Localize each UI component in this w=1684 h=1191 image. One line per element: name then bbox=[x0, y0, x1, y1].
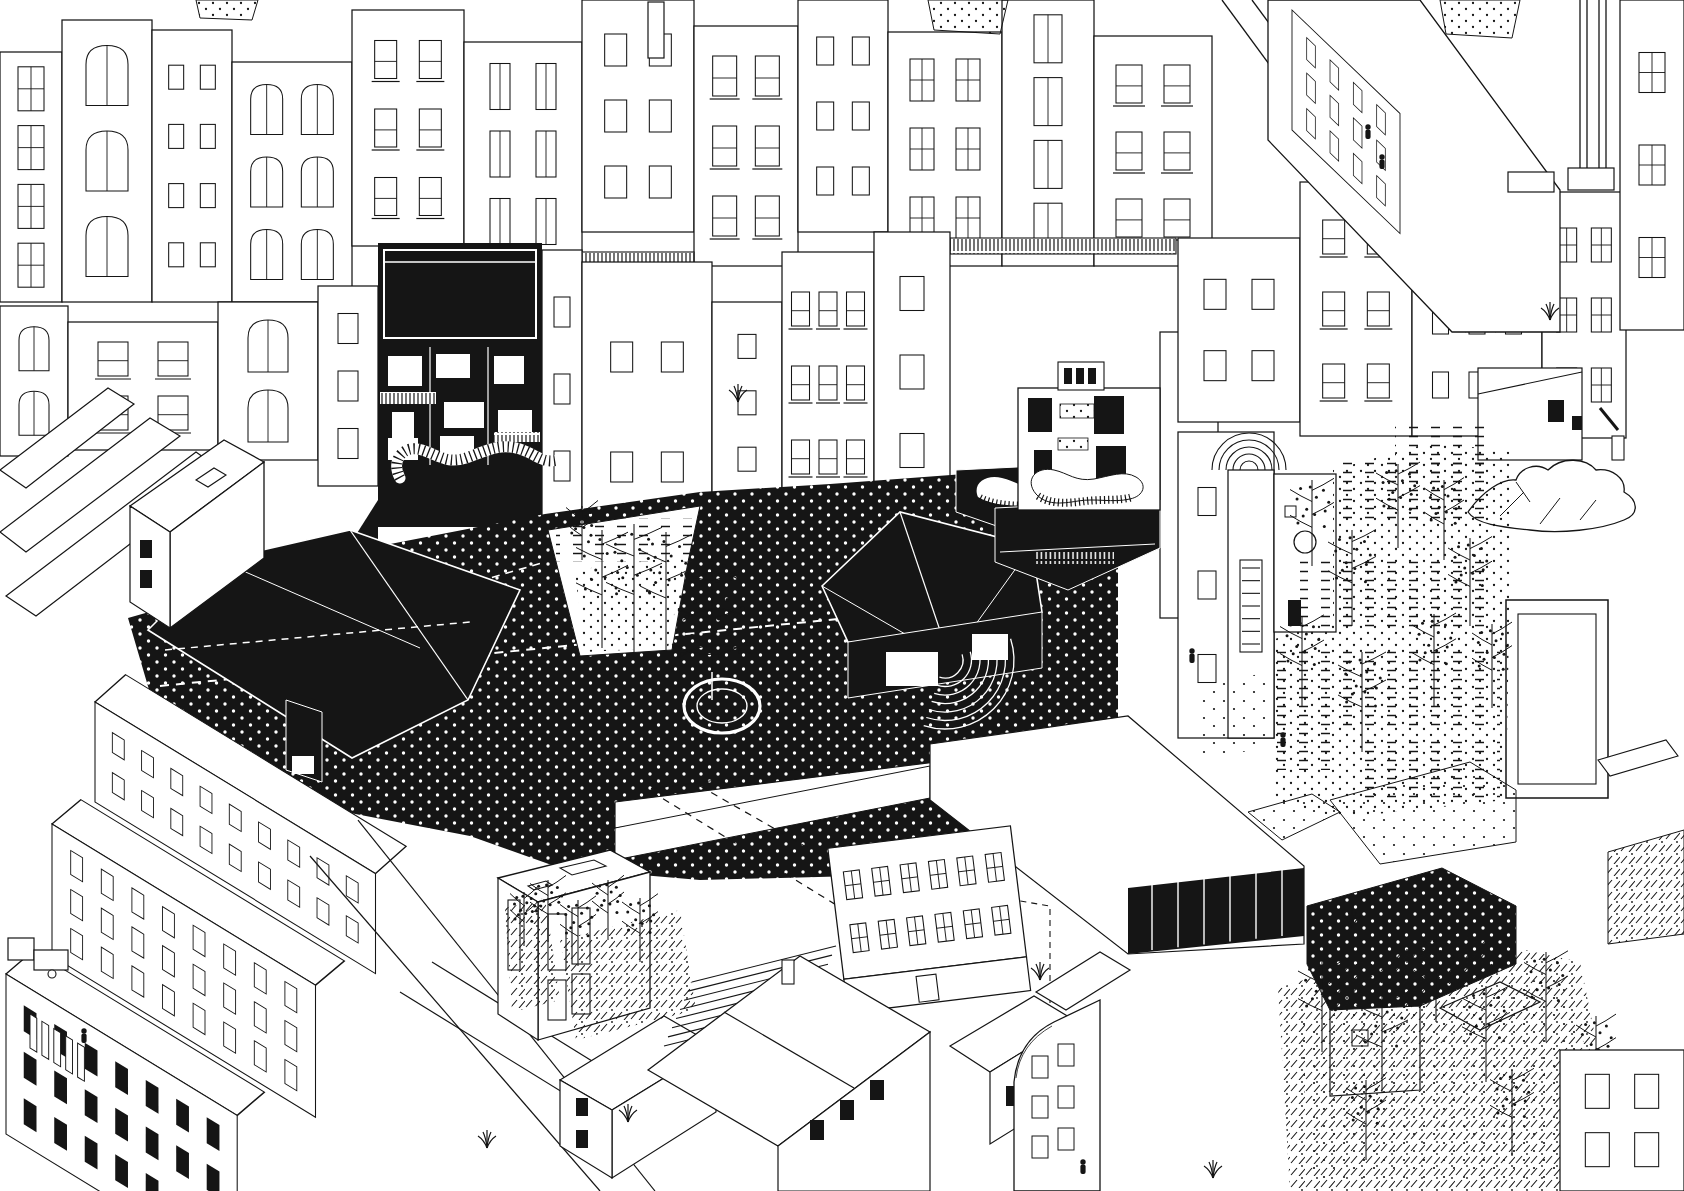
tree-foliage-dot bbox=[1556, 961, 1559, 964]
tree-foliage-dot bbox=[589, 511, 592, 514]
sash-window bbox=[1116, 199, 1142, 237]
sash-window bbox=[713, 126, 737, 166]
tree-foliage-dot bbox=[1515, 1086, 1518, 1089]
tree-foliage-dot bbox=[1435, 649, 1438, 652]
tree-foliage-dot bbox=[1480, 631, 1483, 634]
tree-foliage-dot bbox=[1308, 968, 1311, 971]
tree-foliage-dot bbox=[1457, 545, 1460, 548]
tree-foliage-dot bbox=[1302, 515, 1305, 518]
tree-foliage-dot bbox=[587, 922, 590, 925]
tree-foliage-dot bbox=[1498, 1036, 1501, 1039]
tree-foliage-dot bbox=[718, 654, 722, 658]
tree-foliage-dot bbox=[1367, 1001, 1370, 1004]
tree-foliage-dot bbox=[616, 571, 619, 574]
tree-foliage-dot bbox=[722, 564, 726, 568]
black-billboard-facade bbox=[378, 243, 542, 347]
tree-foliage-dot bbox=[1463, 566, 1466, 569]
tree-foliage-dot bbox=[618, 535, 621, 538]
tree-foliage-dot bbox=[1400, 1017, 1403, 1020]
tree-foliage-dot bbox=[596, 909, 599, 912]
plain-window bbox=[817, 37, 834, 65]
plain-window bbox=[817, 102, 834, 130]
tree-foliage-dot bbox=[572, 921, 575, 924]
tree-foliage-dot bbox=[1446, 646, 1449, 649]
tree-foliage-dot bbox=[1339, 982, 1342, 985]
dark-window bbox=[840, 1100, 854, 1120]
person-figure bbox=[1080, 1159, 1085, 1174]
tree-foliage-dot bbox=[1449, 636, 1452, 639]
tree-foliage-dot bbox=[710, 561, 714, 565]
dark-vent bbox=[1548, 400, 1564, 422]
facade-wall bbox=[1094, 36, 1212, 266]
tree-foliage-dot bbox=[1344, 673, 1347, 676]
facade-wall bbox=[798, 0, 888, 232]
small-window bbox=[1058, 1086, 1074, 1108]
cart-box bbox=[34, 950, 68, 970]
sash-window bbox=[1164, 65, 1190, 103]
plain-window bbox=[338, 429, 358, 459]
tree-foliage-dot bbox=[1311, 997, 1314, 1000]
plinth bbox=[1508, 172, 1554, 192]
attic-slit bbox=[1064, 368, 1072, 384]
small-window bbox=[1058, 1128, 1074, 1150]
tree-foliage-dot bbox=[1309, 485, 1312, 488]
tree-foliage-dot bbox=[1363, 1085, 1366, 1088]
tree-foliage-dot bbox=[1365, 671, 1368, 674]
plain-window bbox=[852, 37, 869, 65]
tree-foliage-dot bbox=[728, 632, 732, 636]
plain-window bbox=[554, 297, 570, 327]
tree-foliage-dot bbox=[651, 543, 654, 546]
pavilion-opening bbox=[886, 652, 938, 686]
tree-foliage-dot bbox=[1355, 548, 1358, 551]
vent-grid bbox=[1060, 404, 1094, 418]
plain-window bbox=[611, 342, 633, 372]
tree-foliage-dot bbox=[1418, 633, 1421, 636]
tree-foliage-dot bbox=[1299, 487, 1302, 490]
tree-foliage-dot bbox=[1384, 1031, 1387, 1034]
tree-foliage-dot bbox=[1305, 508, 1308, 511]
crosswalk-stripe bbox=[54, 1029, 61, 1067]
tree-foliage-dot bbox=[593, 519, 596, 522]
tree-foliage-dot bbox=[1447, 980, 1450, 983]
plain-window bbox=[200, 243, 215, 267]
crosswalk-stripe bbox=[66, 1036, 73, 1074]
plain-window bbox=[1198, 488, 1216, 516]
tree-foliage-dot bbox=[1496, 1087, 1499, 1090]
tree-foliage-dot bbox=[1296, 497, 1299, 500]
tree-foliage-dot bbox=[1420, 977, 1423, 980]
tree-foliage-dot bbox=[619, 894, 622, 897]
tree-foliage-dot bbox=[533, 905, 536, 908]
tree-foliage-dot bbox=[1527, 1091, 1530, 1094]
facade-wall bbox=[464, 42, 582, 266]
tree-foliage-dot bbox=[1530, 970, 1533, 973]
facade bbox=[232, 62, 352, 302]
person-head bbox=[1189, 648, 1194, 653]
white-window bbox=[392, 412, 414, 442]
dark-slit-window bbox=[140, 570, 152, 588]
facade bbox=[798, 0, 888, 232]
tree-foliage-dot bbox=[1439, 950, 1442, 953]
tree-foliage-dot bbox=[662, 540, 665, 543]
tree-foliage-dot bbox=[1460, 573, 1463, 576]
plain-window bbox=[1635, 1133, 1659, 1167]
dark-window bbox=[870, 1080, 884, 1100]
plain-window bbox=[200, 184, 215, 208]
tree-foliage-dot bbox=[600, 904, 603, 907]
plain-window bbox=[661, 452, 683, 482]
tree-foliage-dot bbox=[539, 905, 542, 908]
tree-foliage-dot bbox=[603, 899, 606, 902]
tree-foliage-dot bbox=[1345, 561, 1348, 564]
tree-foliage-dot bbox=[1313, 513, 1316, 516]
person-head bbox=[1280, 732, 1285, 737]
tree-foliage-dot bbox=[685, 615, 689, 619]
tree-foliage-dot bbox=[1468, 1006, 1471, 1009]
tree-foliage-dot bbox=[1334, 550, 1337, 553]
tree-foliage-dot bbox=[1471, 572, 1474, 575]
tree-foliage-dot bbox=[634, 918, 637, 921]
corner-facade bbox=[1620, 0, 1684, 330]
tree-foliage-dot bbox=[589, 534, 592, 537]
tree-foliage-dot bbox=[1375, 1088, 1378, 1091]
tree-foliage-dot bbox=[1357, 1112, 1360, 1115]
sash-window bbox=[819, 366, 837, 400]
plain-window bbox=[169, 124, 184, 148]
sash-window bbox=[819, 440, 837, 474]
tree-foliage-dot bbox=[1345, 701, 1348, 704]
tree-foliage-dot bbox=[1503, 653, 1506, 656]
tree-foliage-dot bbox=[1424, 651, 1427, 654]
dark-vent bbox=[1572, 416, 1582, 430]
tree-foliage-dot bbox=[1325, 977, 1328, 980]
attic-slit bbox=[1088, 368, 1096, 384]
sash-window bbox=[792, 366, 810, 400]
tree-foliage-dot bbox=[1533, 960, 1536, 963]
sash-window bbox=[755, 56, 779, 96]
person-head bbox=[1379, 154, 1384, 159]
school-block bbox=[828, 826, 1031, 1013]
tree-foliage-dot bbox=[1445, 511, 1448, 514]
tree-foliage-dot bbox=[1458, 499, 1461, 502]
tree-foliage-dot bbox=[1367, 1111, 1370, 1114]
tree-foliage-dot bbox=[582, 526, 585, 529]
plain-window bbox=[1204, 279, 1226, 309]
tree-foliage-dot bbox=[1373, 663, 1376, 666]
cart-box bbox=[8, 938, 34, 960]
tree-foliage-dot bbox=[615, 592, 618, 595]
plain-window bbox=[661, 342, 683, 372]
tree-foliage-dot bbox=[525, 901, 528, 904]
tree-foliage-dot bbox=[1351, 693, 1354, 696]
tree-foliage-dot bbox=[1610, 1036, 1613, 1039]
tree-foliage-dot bbox=[569, 926, 572, 929]
tree-foliage-dot bbox=[679, 595, 682, 598]
tree-foliage-dot bbox=[575, 904, 578, 907]
sash-window bbox=[1164, 132, 1190, 170]
sash-window bbox=[1323, 292, 1345, 326]
meadow-dashes bbox=[1330, 650, 1500, 726]
tree-foliage-dot bbox=[710, 595, 714, 599]
tree-foliage-dot bbox=[1335, 992, 1338, 995]
plain-window bbox=[1635, 1074, 1659, 1108]
tree-foliage-dot bbox=[1454, 522, 1457, 525]
facade bbox=[542, 250, 582, 528]
tree-foliage-dot bbox=[1483, 992, 1486, 995]
tree-foliage-dot bbox=[598, 885, 601, 888]
tree-foliage-dot bbox=[1333, 970, 1336, 973]
tree-foliage-dot bbox=[587, 540, 590, 543]
tree-foliage-dot bbox=[1473, 554, 1476, 557]
tree-foliage-dot bbox=[1547, 987, 1550, 990]
tree-foliage-dot bbox=[641, 922, 644, 925]
tree-foliage-dot bbox=[696, 565, 700, 569]
facade bbox=[888, 32, 1002, 266]
tree-foliage-dot bbox=[1364, 580, 1367, 583]
sash-window bbox=[792, 440, 810, 474]
tree-foliage-dot bbox=[1292, 652, 1295, 655]
sash-window bbox=[1367, 364, 1389, 398]
tree-foliage-dot bbox=[1304, 979, 1307, 982]
tree-foliage-dot bbox=[649, 931, 652, 934]
tree-foliage-dot bbox=[629, 903, 632, 906]
plain-window bbox=[738, 447, 756, 471]
tree-foliage-dot bbox=[741, 606, 745, 610]
facade-wall bbox=[828, 826, 1027, 979]
school-door bbox=[916, 974, 939, 1002]
tree-foliage-dot bbox=[1584, 1023, 1587, 1026]
tree-foliage-dot bbox=[1486, 651, 1489, 654]
facade-wall bbox=[1178, 238, 1300, 422]
dark-window bbox=[1028, 398, 1052, 432]
facade bbox=[782, 252, 874, 514]
tree-foliage-dot bbox=[1429, 962, 1432, 965]
tree-foliage-dot bbox=[587, 934, 590, 937]
sash-window bbox=[1116, 65, 1142, 103]
tree-foliage-dot bbox=[579, 925, 582, 928]
parapet-rail-ticks bbox=[950, 238, 1176, 254]
tree-foliage-dot bbox=[1590, 1043, 1593, 1046]
tree-foliage-dot bbox=[1312, 625, 1315, 628]
tree-foliage-dot bbox=[621, 576, 624, 579]
tree-foliage-dot bbox=[1394, 1003, 1397, 1006]
tree-foliage-dot bbox=[557, 912, 560, 915]
tree-foliage-dot bbox=[594, 569, 597, 572]
tree-foliage-dot bbox=[1305, 1005, 1308, 1008]
person-head bbox=[1080, 1159, 1085, 1164]
tree-foliage-dot bbox=[626, 566, 629, 569]
tree-foliage-dot bbox=[515, 896, 518, 899]
chimney bbox=[648, 2, 664, 58]
canopy-house bbox=[1478, 368, 1582, 460]
sash-window bbox=[1367, 292, 1389, 326]
tree-foliage-dot bbox=[648, 904, 651, 907]
school-facade bbox=[828, 826, 1027, 979]
tree-foliage-dot bbox=[1388, 498, 1391, 501]
tree-foliage-dot bbox=[590, 916, 593, 919]
person-body bbox=[1379, 160, 1384, 170]
plain-window bbox=[554, 374, 570, 404]
tree-foliage-dot bbox=[1299, 622, 1302, 625]
tree-foliage-dot bbox=[725, 598, 729, 602]
plain-window bbox=[649, 100, 671, 132]
tree-foliage-dot bbox=[1334, 1008, 1337, 1011]
tree-foliage-dot bbox=[1401, 479, 1404, 482]
tree-foliage-dot bbox=[1480, 547, 1483, 550]
tree-foliage-dot bbox=[1429, 496, 1432, 499]
plain-window bbox=[611, 452, 633, 482]
tree-foliage-dot bbox=[1423, 941, 1426, 944]
tree-foliage-dot bbox=[1502, 668, 1505, 671]
tree-foliage-dot bbox=[1451, 955, 1454, 958]
small-window bbox=[1032, 1096, 1048, 1118]
dark-window bbox=[810, 1120, 824, 1140]
tree-foliage-dot bbox=[1382, 505, 1385, 508]
tree-foliage-dot bbox=[615, 587, 618, 590]
plain-window bbox=[738, 391, 756, 415]
tree-foliage-dot bbox=[1289, 624, 1292, 627]
tree-foliage-dot bbox=[1448, 964, 1451, 967]
tree-foliage-dot bbox=[1482, 568, 1485, 571]
tree-foliage-dot bbox=[604, 576, 607, 579]
tree-foliage-dot bbox=[1379, 677, 1382, 680]
sash-window bbox=[419, 41, 441, 79]
meadow-dashes bbox=[1276, 650, 1332, 770]
tree-foliage-dot bbox=[517, 913, 520, 916]
plain-window bbox=[1585, 1074, 1609, 1108]
tree-foliage-dot bbox=[1395, 469, 1398, 472]
tree-foliage-dot bbox=[1375, 687, 1378, 690]
tree-foliage-dot bbox=[1374, 705, 1377, 708]
tree-foliage-dot bbox=[1437, 631, 1440, 634]
person-figure bbox=[1280, 732, 1285, 747]
tree-foliage-dot bbox=[1481, 584, 1484, 587]
tree-foliage-dot bbox=[590, 578, 593, 581]
tree-foliage-dot bbox=[1438, 506, 1441, 509]
plain-window bbox=[900, 355, 924, 389]
sash-window bbox=[819, 292, 837, 326]
person-head bbox=[1365, 124, 1370, 129]
tree-foliage-dot bbox=[1599, 1031, 1602, 1034]
tree-foliage-dot bbox=[557, 901, 560, 904]
tree-foliage-dot bbox=[1549, 969, 1552, 972]
tree-foliage-dot bbox=[1489, 1004, 1492, 1007]
dotted-roof bbox=[928, 0, 1008, 34]
tree-foliage-dot bbox=[729, 576, 733, 580]
tree-foliage-dot bbox=[1543, 958, 1546, 961]
tree-foliage-dot bbox=[717, 617, 721, 621]
corner-house bbox=[1560, 1050, 1684, 1191]
tree-foliage-dot bbox=[1487, 1023, 1490, 1026]
tree-foliage-dot bbox=[598, 538, 601, 541]
terrace-railing bbox=[1036, 552, 1114, 564]
dark-door bbox=[1288, 600, 1301, 626]
tree-foliage-dot bbox=[648, 591, 651, 594]
crosswalk-stripe bbox=[78, 1043, 85, 1081]
plain-window bbox=[1198, 655, 1216, 683]
tree-foliage-dot bbox=[1348, 661, 1351, 664]
person-body bbox=[1080, 1165, 1085, 1175]
tree-foliage-dot bbox=[738, 650, 742, 654]
plain-window bbox=[900, 434, 924, 468]
sash-window bbox=[755, 126, 779, 166]
tree-foliage-dot bbox=[1539, 981, 1542, 984]
tree-foliage-dot bbox=[615, 886, 618, 889]
plain-window bbox=[1433, 372, 1449, 398]
tree-foliage-dot bbox=[1477, 641, 1480, 644]
facade bbox=[62, 20, 152, 302]
facade bbox=[694, 26, 798, 266]
tree-foliage-dot bbox=[1323, 995, 1326, 998]
plain-window bbox=[605, 34, 627, 66]
tree-foliage-dot bbox=[652, 913, 655, 916]
plain-window bbox=[338, 371, 358, 401]
tree-foliage-dot bbox=[1377, 1107, 1380, 1110]
plinth bbox=[1568, 168, 1614, 190]
tree-foliage-dot bbox=[580, 912, 583, 915]
tree-foliage-dot bbox=[1322, 489, 1325, 492]
sash-window bbox=[755, 196, 779, 236]
tree-foliage-dot bbox=[584, 515, 587, 518]
tree-foliage-dot bbox=[1493, 656, 1496, 659]
tree-foliage-dot bbox=[1431, 620, 1434, 623]
louver-band-ticks bbox=[380, 392, 436, 404]
tree-foliage-dot bbox=[545, 883, 548, 886]
tree-foliage-dot bbox=[1364, 1041, 1367, 1044]
person-body bbox=[1280, 738, 1285, 748]
tree-foliage-dot bbox=[1454, 581, 1457, 584]
tree-foliage-dot bbox=[596, 892, 599, 895]
tree-foliage-dot bbox=[567, 905, 570, 908]
round-window bbox=[1294, 531, 1316, 553]
plain-window bbox=[852, 167, 869, 195]
facade bbox=[218, 302, 318, 460]
plain-window bbox=[169, 243, 184, 267]
tree-foliage-dot bbox=[1455, 507, 1458, 510]
tree-foliage-dot bbox=[531, 910, 534, 913]
plain-window bbox=[738, 334, 756, 358]
tree-foliage-dot bbox=[1395, 1045, 1398, 1048]
facade bbox=[0, 52, 62, 302]
slope-stipple bbox=[575, 556, 685, 652]
tree-foliage-dot bbox=[746, 642, 750, 646]
facade-wall bbox=[1560, 1050, 1684, 1191]
tree-foliage-dot bbox=[1317, 638, 1320, 641]
tree-foliage-dot bbox=[1427, 644, 1430, 647]
tree-foliage-dot bbox=[1338, 538, 1341, 541]
tree-foliage-dot bbox=[626, 911, 629, 914]
plain-window bbox=[605, 166, 627, 198]
tree-foliage-dot bbox=[1365, 563, 1368, 566]
tree-foliage-dot bbox=[715, 579, 719, 583]
tree-foliage-dot bbox=[690, 578, 694, 582]
crosswalk-stripe bbox=[42, 1021, 49, 1059]
sash-window bbox=[419, 178, 441, 216]
tree-foliage-dot bbox=[1399, 496, 1402, 499]
tree-foliage-dot bbox=[1324, 509, 1327, 512]
tree-foliage-dot bbox=[570, 516, 573, 519]
crosswalk-stripe bbox=[30, 1014, 37, 1052]
plain-window bbox=[1198, 571, 1216, 599]
tree-foliage-dot bbox=[1489, 629, 1492, 632]
tree-foliage-dot bbox=[734, 613, 738, 617]
tree-foliage-dot bbox=[519, 909, 522, 912]
dotted-roof bbox=[1440, 0, 1520, 38]
tree-foliage-dot bbox=[1305, 633, 1308, 636]
tree-foliage-dot bbox=[1593, 1021, 1596, 1024]
tree-foliage-dot bbox=[1359, 659, 1362, 662]
